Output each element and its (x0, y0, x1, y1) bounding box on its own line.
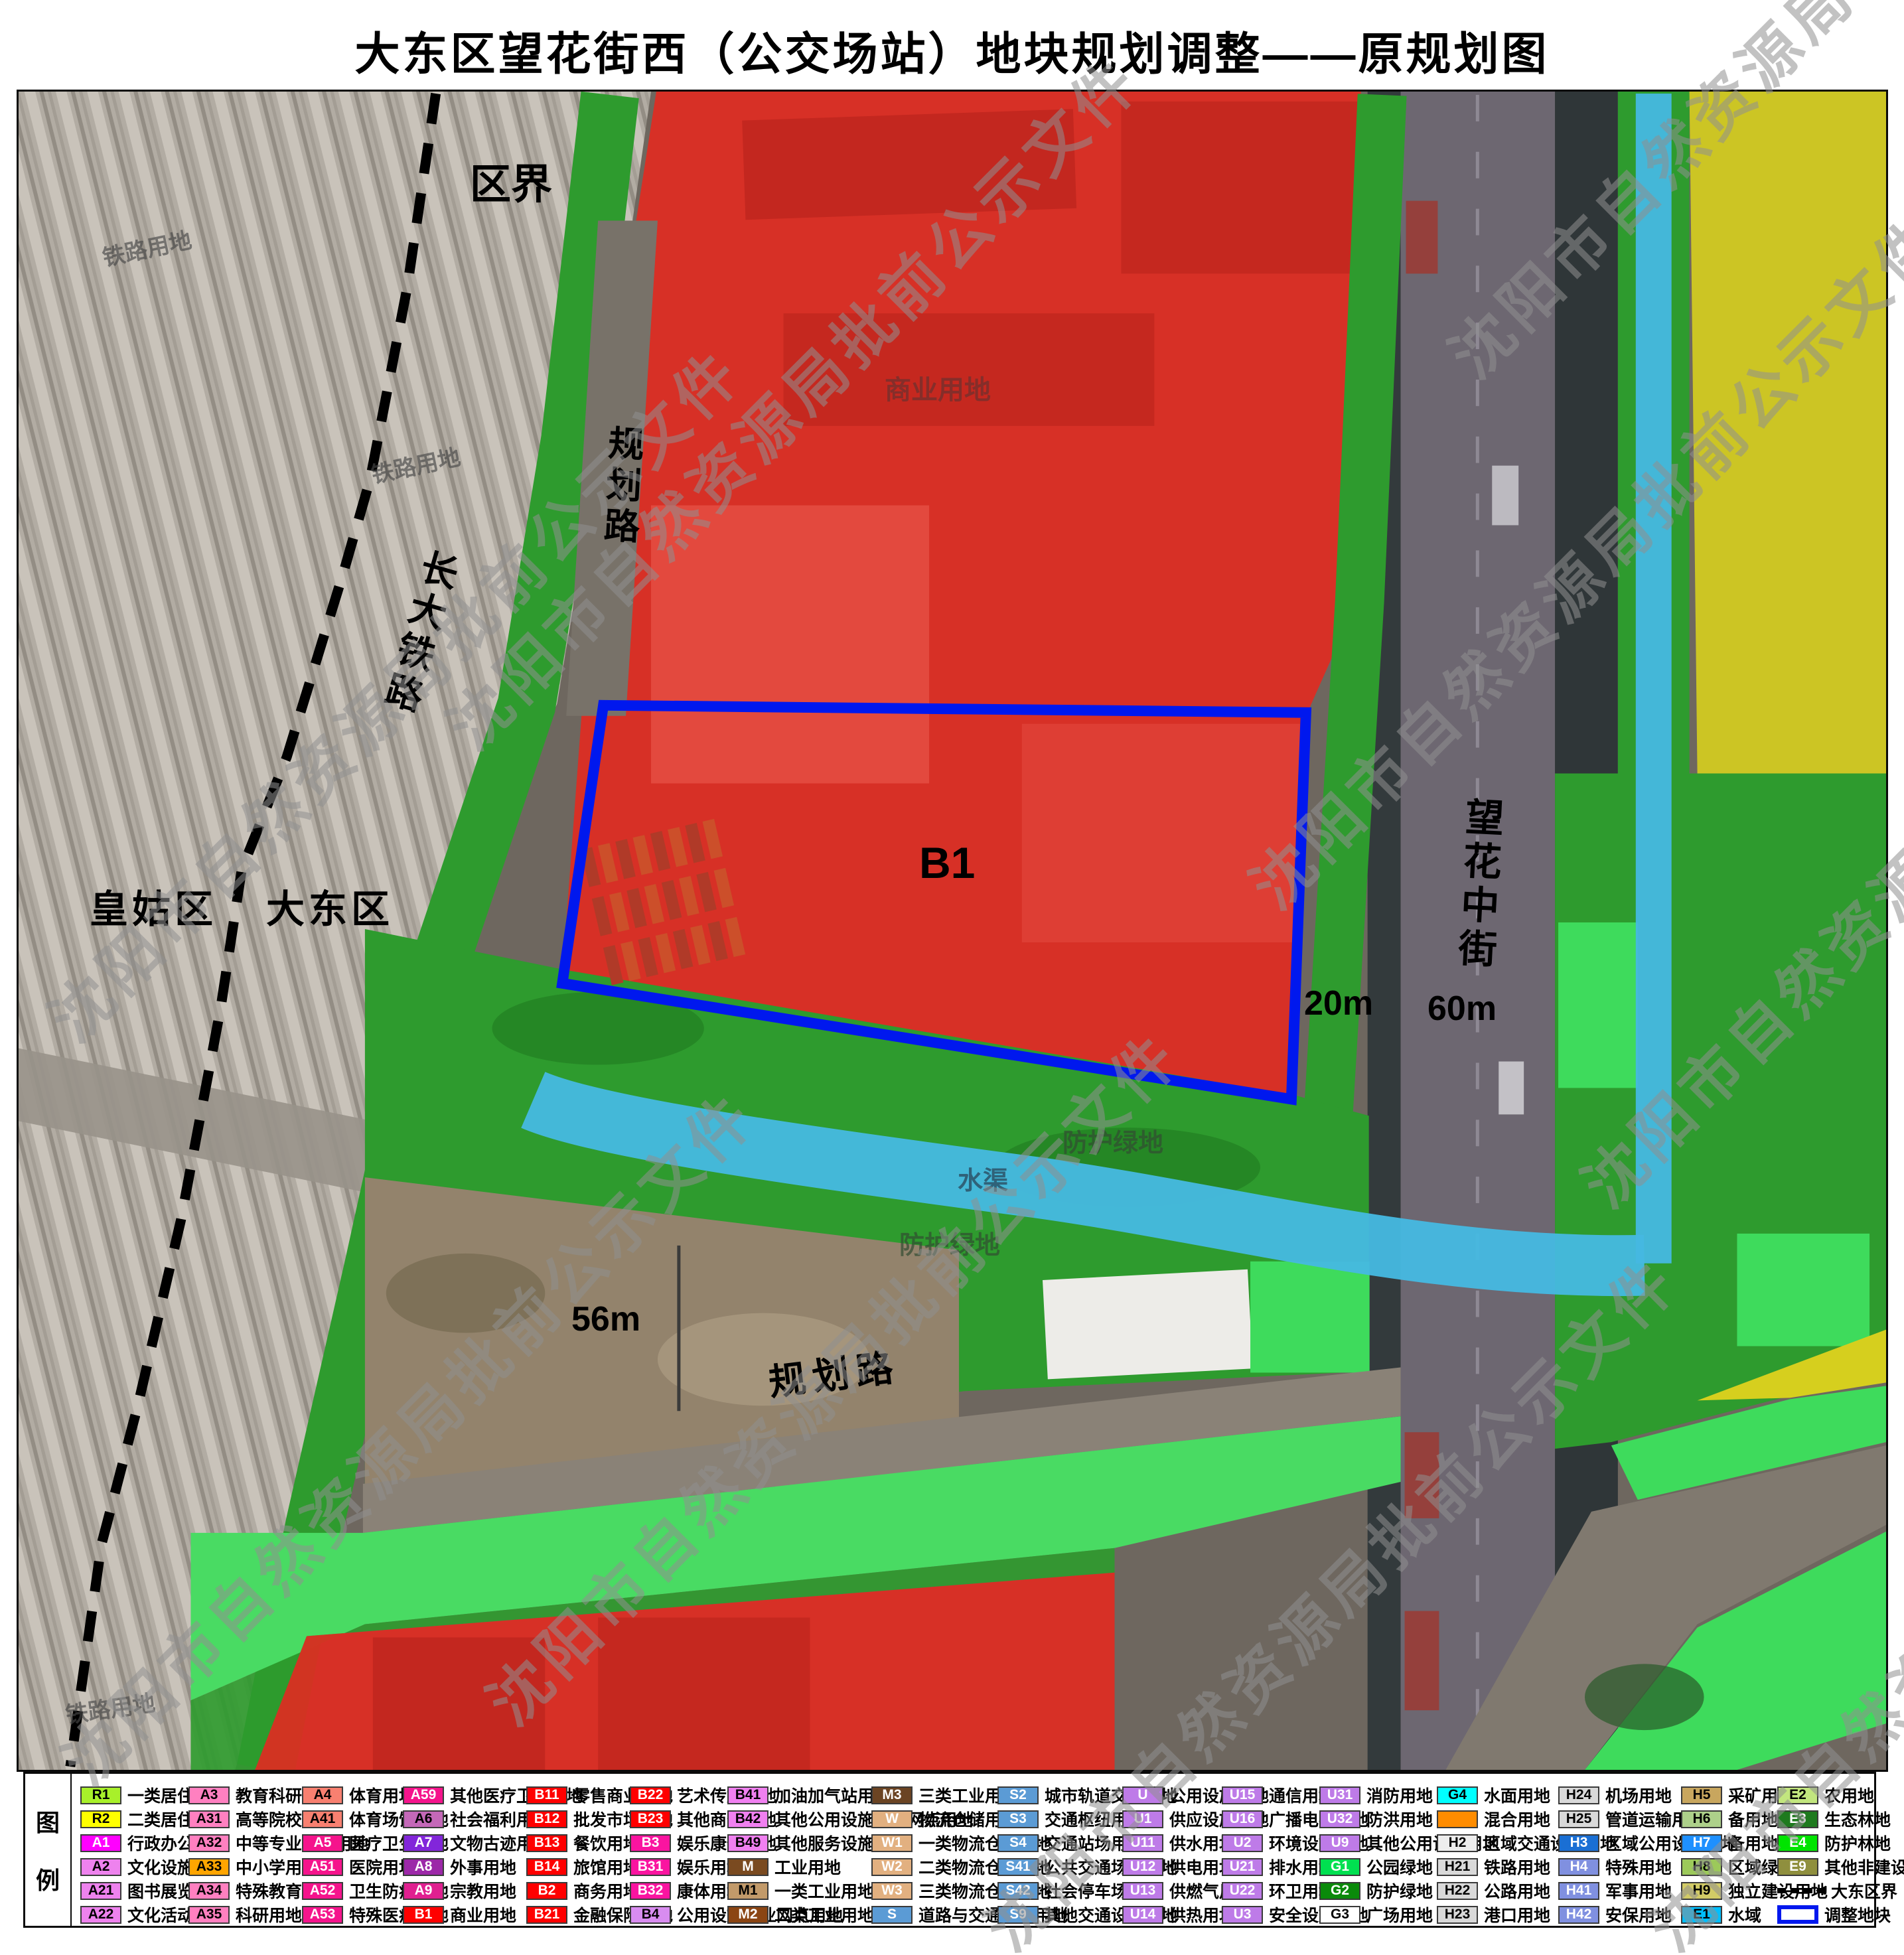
legend-swatch-A6: A6 (403, 1810, 444, 1828)
legend-swatch-A51: A51 (302, 1858, 343, 1876)
map-canvas: 区界 规划路 长大铁路 皇姑区 大东区 B1 20m 60m 望花中街 56m … (17, 90, 1888, 1772)
legend-item-B2: B2商务用地 (526, 1881, 640, 1900)
legend-swatch-A7: A7 (403, 1834, 444, 1852)
legend-item-U14: U14供热用地 (1122, 1905, 1236, 1924)
legend-swatch-U3: U3 (1222, 1906, 1263, 1924)
legend-swatch-G1: G1 (1319, 1858, 1360, 1876)
faint-label-protective-green-1: 防护绿地 (1062, 1122, 1163, 1159)
green-patch-1 (1558, 922, 1638, 1088)
legend-swatch-U2: U2 (1222, 1834, 1263, 1852)
legend-swatch-U21: U21 (1222, 1858, 1263, 1876)
legend-swatch-G4: G4 (1437, 1786, 1478, 1804)
legend-swatch-S2: S2 (997, 1786, 1039, 1804)
label-wanghua-street: 望花中街 (1452, 796, 1502, 974)
legend-swatch-H3: H3 (1558, 1834, 1599, 1852)
legend-item-H42: H42安保用地 (1558, 1905, 1672, 1924)
legend-item-E2: E2农用地 (1777, 1786, 1874, 1804)
legend-item-E3: E3生态林地 (1777, 1810, 1891, 1828)
legend-item-W: W物流仓储用地 (871, 1810, 1018, 1828)
legend-label: 铁路用地 (1484, 1855, 1550, 1879)
legend-swatch-H7: H7 (1681, 1834, 1722, 1852)
legend-swatch-H24: H24 (1558, 1786, 1599, 1804)
zone-yellow-residential (1690, 92, 1886, 774)
legend-swatch-U22: U22 (1222, 1882, 1263, 1900)
bus-lane-1 (1406, 201, 1438, 274)
legend-label: 防洪用地 (1366, 1807, 1433, 1831)
legend-swatch-B32: B32 (630, 1882, 671, 1900)
legend-swatch-A3: A3 (188, 1786, 230, 1804)
legend-swatch-A5: A5 (302, 1834, 343, 1852)
legend-swatch-A32: A32 (188, 1834, 230, 1852)
legend-item-G1: G1公园绿地 (1319, 1857, 1433, 1876)
legend-swatch-B41: B41 (727, 1786, 769, 1804)
legend-item-H23: H23港口用地 (1437, 1905, 1550, 1924)
legend-label: 特殊用地 (1605, 1855, 1672, 1879)
legend-swatch-H21: H21 (1437, 1858, 1478, 1876)
legend-swatch-E2: E2 (1777, 1786, 1818, 1804)
legend-item-E1: E1水域 (1681, 1905, 1761, 1924)
legend-item-A9: A9宗教用地 (403, 1881, 516, 1900)
legend-item-M3: M3三类工业用地 (871, 1786, 1018, 1804)
legend-swatch-M: M (727, 1858, 769, 1876)
legend-swatch-S9: S9 (997, 1906, 1039, 1924)
legend-swatch-R1: R1 (80, 1786, 121, 1804)
faint-label-water-channel: 水渠 (958, 1160, 1008, 1196)
legend-label: 备用地 (1728, 1831, 1778, 1855)
zone-green-east-mid (1555, 774, 1886, 1449)
label-width-20m: 20m (1304, 985, 1373, 1022)
legend-label: 机场用地 (1605, 1783, 1672, 1807)
legend-item-U15: U15通信用地 (1222, 1786, 1335, 1804)
boundary-dash-symbol (1777, 1888, 1825, 1893)
legend-swatch-M3: M3 (871, 1786, 913, 1804)
legend-swatch-A2: A2 (80, 1858, 121, 1876)
legend-swatch-E9: E9 (1777, 1858, 1818, 1876)
legend-item-U21: U21排水用地 (1222, 1857, 1335, 1876)
legend-swatch-H42: H42 (1558, 1906, 1599, 1924)
legend-swatch-A53: A53 (302, 1906, 343, 1924)
faint-label-protective-green-2: 防护绿地 (899, 1224, 1000, 1261)
legend-item-H22: H22公路用地 (1437, 1881, 1550, 1900)
legend-label: 二类工业用地 (774, 1903, 874, 1926)
legend-swatch-B31: B31 (630, 1858, 671, 1876)
legend-label: 军事用地 (1605, 1879, 1672, 1903)
legend-swatch-H9: H9 (1681, 1882, 1722, 1900)
legend-swatch-B11: B11 (526, 1786, 567, 1804)
legend-item-B41: B41加油加气站用地 (727, 1786, 891, 1804)
legend-label: 混合用地 (1484, 1807, 1550, 1831)
legend-item-M: M工业用地 (727, 1857, 841, 1876)
legend-swatch-U16: U16 (1222, 1810, 1263, 1828)
label-planned-road-top: 规划路 (598, 424, 642, 549)
legend-swatch-H23: H23 (1437, 1906, 1478, 1924)
legend-label: 防护林地 (1824, 1831, 1891, 1855)
legend-label: 宗教用地 (450, 1879, 516, 1903)
label-width-56m: 56m (571, 1301, 640, 1338)
legend-label: 安保用地 (1605, 1903, 1672, 1926)
legend-swatch-H41: H41 (1558, 1882, 1599, 1900)
legend-item-B31: B31娱乐用地 (630, 1857, 743, 1876)
legend-item-U11: U11供水用地 (1122, 1834, 1236, 1852)
legend-label: 备用地 (1728, 1807, 1778, 1831)
legend-item-B1: B1商业用地 (403, 1905, 516, 1924)
label-dadong-district: 大东区 (266, 890, 394, 930)
legend-swatch-H8: H8 (1681, 1858, 1722, 1876)
legend-swatch-W2: W2 (871, 1858, 913, 1876)
legend-item-G3: G3广场用地 (1319, 1905, 1433, 1924)
page-title: 大东区望花街西（公交场站）地块规划调整——原规划图 (0, 17, 1904, 83)
legend-swatch-S3: S3 (997, 1810, 1039, 1828)
legend-swatch-U9: U9 (1319, 1834, 1360, 1852)
legend-item-B14: B14旅馆用地 (526, 1857, 640, 1876)
legend-item-E4: E4防护林地 (1777, 1834, 1891, 1852)
legend-label: 防护绿地 (1366, 1879, 1433, 1903)
legend-label: 生态林地 (1824, 1807, 1891, 1831)
legend-label-tu: 图 (36, 1804, 60, 1838)
planning-map-page: 大东区望花街西（公交场站）地块规划调整——原规划图 (0, 0, 1904, 1955)
green-patch-2 (1737, 1234, 1869, 1346)
legend-item-G4: G4水面用地 (1437, 1786, 1550, 1804)
legend-label: 外事用地 (450, 1855, 516, 1879)
legend-swatch-A41: A41 (302, 1810, 343, 1828)
legend-swatch-B21: B21 (526, 1906, 567, 1924)
legend-item-U22: U22环卫用地 (1222, 1881, 1335, 1900)
legend-swatch-H2: H2 (1437, 1834, 1478, 1852)
legend-swatch-M2: M2 (727, 1906, 769, 1924)
label-huanggu-district: 皇姑区 (90, 890, 217, 930)
legend-swatch-U32: U32 (1319, 1810, 1360, 1828)
rooftop-south-2 (598, 1618, 810, 1770)
legend-item-H24: H24机场用地 (1558, 1786, 1672, 1804)
label-width-60m: 60m (1428, 991, 1497, 1027)
legend-item-H21: H21铁路用地 (1437, 1857, 1550, 1876)
legend-swatch-S41: S41 (997, 1858, 1039, 1876)
vehicle-2 (1499, 1062, 1524, 1115)
vehicle-1 (1492, 466, 1518, 526)
legend-swatch-G3: G3 (1319, 1906, 1360, 1924)
legend-item-H41: H41军事用地 (1558, 1881, 1672, 1900)
legend-item-A35: A35科研用地 (188, 1905, 302, 1924)
legend-label: 其他非建设用地 (1824, 1855, 1904, 1879)
red-patch-light-2 (1022, 724, 1300, 942)
legend-item-A4: A4体育用地 (302, 1786, 415, 1804)
legend-item-M1: M1一类工业用地 (727, 1881, 874, 1900)
legend-swatch-A4: A4 (302, 1786, 343, 1804)
legend-item-调整地块: 调整地块 (1777, 1905, 1891, 1924)
legend-item-B13: B13餐饮用地 (526, 1834, 640, 1852)
legend-swatch-H5: H5 (1681, 1786, 1722, 1804)
legend-swatch-A59: A59 (403, 1786, 444, 1804)
legend-item-B32: B32康体用地 (630, 1881, 743, 1900)
legend-swatch-U1: U1 (1122, 1810, 1163, 1828)
legend-item-大东区界: 大东区界 (1777, 1881, 1897, 1900)
legend-swatch-A22: A22 (80, 1906, 121, 1924)
legend-item-U32: U32防洪用地 (1319, 1810, 1433, 1828)
legend-item-A33: A33中小学用地 (188, 1857, 319, 1876)
legend-swatch-A35: A35 (188, 1906, 230, 1924)
legend-swatch-E1: E1 (1681, 1906, 1722, 1924)
legend-label: 一类工业用地 (774, 1879, 874, 1903)
legend-swatch-A34: A34 (188, 1882, 230, 1900)
legend-swatch-U12: U12 (1122, 1858, 1163, 1876)
parcel-rect-symbol (1777, 1905, 1818, 1924)
legend-swatch-H4: H4 (1558, 1858, 1599, 1876)
legend-label: 调整地块 (1824, 1903, 1891, 1926)
legend-label-li: 例 (36, 1861, 60, 1896)
legend-swatch-U13: U13 (1122, 1882, 1163, 1900)
legend-label: 消防用地 (1366, 1783, 1433, 1807)
legend-swatch-B42: B42 (727, 1810, 769, 1828)
legend-swatch-E3: E3 (1777, 1810, 1818, 1828)
white-building (1043, 1269, 1253, 1380)
legend-swatch-S: S (871, 1906, 913, 1924)
legend-swatch-B23: B23 (630, 1810, 671, 1828)
legend-swatch-U31: U31 (1319, 1786, 1360, 1804)
label-district-boundary: 区界 (470, 163, 552, 206)
legend-item-H4: H4特殊用地 (1558, 1857, 1672, 1876)
legend-swatch-E4: E4 (1777, 1834, 1818, 1852)
legend-swatch-A31: A31 (188, 1810, 230, 1828)
legend-panel: 图 例 R1一类居住用地R2二类居住用地A1行政办公用地A2文化设施用地A21图… (23, 1772, 1876, 1928)
legend-swatch-M1: M1 (727, 1882, 769, 1900)
legend-swatch-B4: B4 (630, 1906, 671, 1924)
legend-label: 水域 (1728, 1903, 1761, 1926)
legend-swatch-B22: B22 (630, 1786, 671, 1804)
legend-swatch-S4: S4 (997, 1834, 1039, 1852)
legend-label: 工业用地 (774, 1855, 841, 1879)
legend-label: 商业用地 (450, 1903, 516, 1926)
legend-swatch-A8: A8 (403, 1858, 444, 1876)
rooftop-south-1 (373, 1637, 545, 1770)
legend-swatch-B2: B2 (526, 1882, 567, 1900)
legend-swatch-S42: S42 (997, 1882, 1039, 1900)
red-patch-light-1 (651, 506, 929, 784)
legend-swatch-W3: W3 (871, 1882, 913, 1900)
legend-label: 大东区界 (1831, 1879, 1897, 1903)
legend-swatch-U11: U11 (1122, 1834, 1163, 1852)
legend-item-U31: U31消防用地 (1319, 1786, 1433, 1804)
legend-swatch-B14: B14 (526, 1858, 567, 1876)
faint-label-commercial-use: 商业用地 (885, 368, 991, 407)
bus-lane-3 (1405, 1611, 1439, 1711)
legend-swatch-R2: R2 (80, 1810, 121, 1828)
legend-swatch-H22: H22 (1437, 1882, 1478, 1900)
legend-swatch-B49: B49 (727, 1834, 769, 1852)
legend-swatch-mixed (1437, 1810, 1478, 1828)
legend-swatch-A9: A9 (403, 1882, 444, 1900)
label-parcel-b1: B1 (919, 840, 975, 886)
legend-label: 港口用地 (1484, 1903, 1550, 1926)
legend-swatch-B1: B1 (403, 1906, 444, 1924)
legend-label: 广场用地 (1366, 1903, 1433, 1926)
legend-item-H6: H6备用地 (1681, 1810, 1778, 1828)
green-patch-building (1250, 1262, 1370, 1373)
legend-swatch-B13: B13 (526, 1834, 567, 1852)
legend-swatch-A1: A1 (80, 1834, 121, 1852)
legend-label: 公园绿地 (1366, 1855, 1433, 1879)
legend-item-A8: A8外事用地 (403, 1857, 516, 1876)
rooftop-1 (742, 109, 1076, 220)
dirt-blob-1 (386, 1254, 545, 1333)
legend-swatch-U: U (1122, 1786, 1163, 1804)
legend-swatch-H25: H25 (1558, 1810, 1599, 1828)
legend-swatch-U15: U15 (1222, 1786, 1263, 1804)
legend-swatch-W1: W1 (871, 1834, 913, 1852)
tree-blob-se (1585, 1664, 1704, 1730)
legend-swatch-U14: U14 (1122, 1906, 1163, 1924)
legend-label: 农用地 (1824, 1783, 1874, 1807)
rooftop-2 (1121, 102, 1372, 273)
legend-item-E9: E9其他非建设用地 (1777, 1857, 1904, 1876)
legend-swatch-B12: B12 (526, 1810, 567, 1828)
legend-swatch-A52: A52 (302, 1882, 343, 1900)
legend-item-H7: H7备用地 (1681, 1834, 1778, 1852)
legend-swatch-A33: A33 (188, 1858, 230, 1876)
legend-item-U12: U12供电用地 (1122, 1857, 1236, 1876)
bus-lane-2 (1405, 1432, 1439, 1518)
legend-swatch-A21: A21 (80, 1882, 121, 1900)
legend-label: 公路用地 (1484, 1879, 1550, 1903)
legend-item-M2: M2二类工业用地 (727, 1905, 874, 1924)
legend-swatch-B3: B3 (630, 1834, 671, 1852)
legend-swatch-W: W (871, 1810, 913, 1828)
legend-label: 水面用地 (1484, 1783, 1550, 1807)
legend-swatch-G2: G2 (1319, 1882, 1360, 1900)
legend-label: 科研用地 (236, 1903, 302, 1926)
legend-item-G2: G2防护绿地 (1319, 1881, 1433, 1900)
legend-side-label: 图 例 (25, 1774, 72, 1926)
legend-item-混合用地: 混合用地 (1437, 1810, 1550, 1828)
legend-swatch-H6: H6 (1681, 1810, 1722, 1828)
legend-item-A51: A51医院用地 (302, 1857, 415, 1876)
